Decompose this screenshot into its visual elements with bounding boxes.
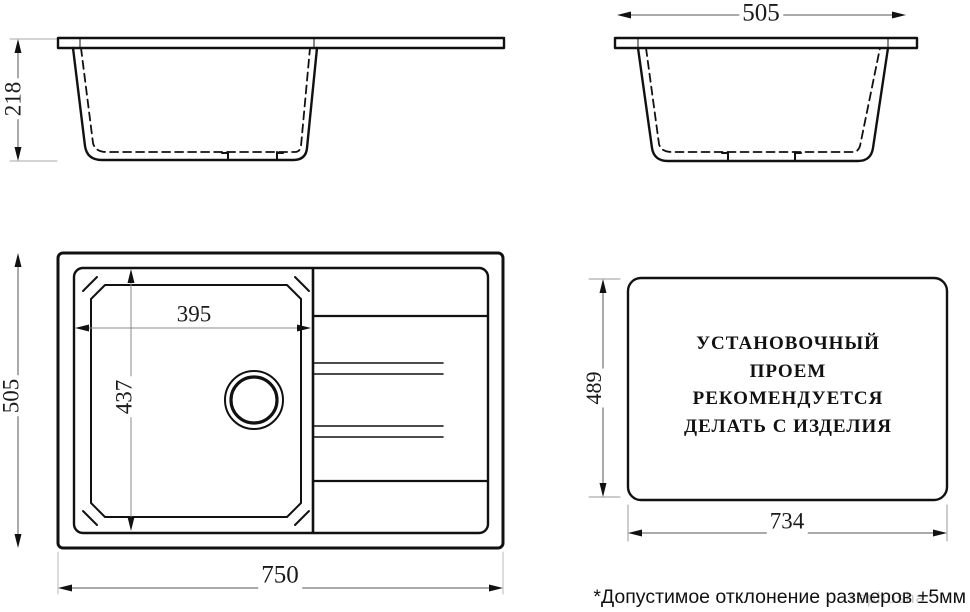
drainboard-grooves bbox=[313, 316, 487, 481]
installation-note-line: ПРОЕМ bbox=[668, 358, 908, 386]
side-section-short-view bbox=[615, 12, 917, 162]
cutout-depth-label: 489 bbox=[582, 369, 606, 408]
overall-width-label: 750 bbox=[258, 562, 302, 589]
depth-dimension-label: 218 bbox=[1, 79, 26, 120]
installation-note-line: УСТАНОВОЧНЫЙ bbox=[668, 330, 908, 358]
installation-note-line: ДЕЛАТЬ С ИЗДЕЛИЯ bbox=[668, 413, 908, 441]
bowl-inner-dashed bbox=[646, 48, 880, 152]
overall-depth-label: 505 bbox=[0, 376, 24, 417]
bowl-outline bbox=[638, 48, 888, 161]
drawing-linework bbox=[0, 0, 970, 612]
tolerance-footnote: *Допустимое отклонение размеров ±5мм bbox=[593, 586, 966, 609]
drain-circle bbox=[225, 371, 283, 429]
rim-profile bbox=[615, 38, 917, 48]
bowl-width-label: 395 bbox=[174, 302, 215, 327]
sink-technical-drawing: 218 505 505 395 437 750 489 734 УСТАНОВО… bbox=[0, 0, 970, 612]
installation-note: УСТАНОВОЧНЫЙ ПРОЕМ РЕКОМЕНДУЕТСЯ ДЕЛАТЬ … bbox=[668, 330, 908, 440]
side-section-long-view bbox=[10, 38, 504, 161]
cutout-width-label: 734 bbox=[767, 509, 808, 534]
width-dimension-label: 505 bbox=[739, 0, 783, 27]
bowl-inner-dashed bbox=[81, 48, 310, 152]
bowl-outline bbox=[73, 48, 317, 160]
installation-note-line: РЕКОМЕНДУЕТСЯ bbox=[668, 385, 908, 413]
drain-flange-marks bbox=[722, 152, 801, 160]
top-view bbox=[15, 253, 504, 594]
rim-profile bbox=[58, 38, 504, 48]
bowl-depth-label: 437 bbox=[112, 377, 137, 418]
